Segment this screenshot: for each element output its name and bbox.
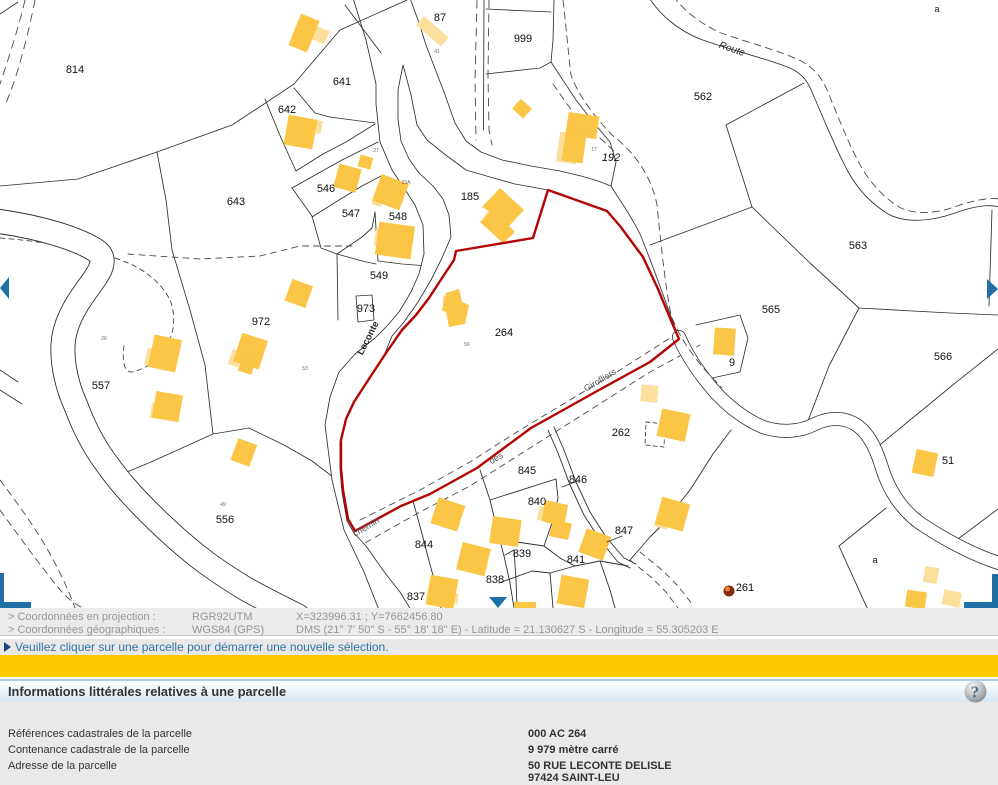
svg-text:844: 844 <box>415 539 433 551</box>
svg-text:a: a <box>934 4 939 14</box>
svg-text:des: des <box>487 450 505 466</box>
svg-text:Route: Route <box>717 40 746 59</box>
svg-text:549: 549 <box>370 270 388 282</box>
svg-text:563: 563 <box>849 240 867 252</box>
svg-text:53: 53 <box>302 366 308 372</box>
svg-text:837: 837 <box>407 591 425 603</box>
svg-text:845: 845 <box>518 465 536 477</box>
svg-text:56: 56 <box>464 342 470 348</box>
svg-text:838: 838 <box>486 574 504 586</box>
svg-text:546: 546 <box>317 183 335 195</box>
svg-text:839: 839 <box>513 548 531 560</box>
svg-text:9: 9 <box>729 357 735 369</box>
svg-text:642: 642 <box>278 104 296 116</box>
svg-text:264: 264 <box>495 327 513 339</box>
svg-text:814: 814 <box>66 64 84 76</box>
svg-text:192: 192 <box>602 152 620 164</box>
svg-text:973: 973 <box>357 303 375 315</box>
svg-text:261: 261 <box>736 582 754 594</box>
svg-text:87: 87 <box>434 12 446 24</box>
svg-text:?: ? <box>971 683 980 702</box>
svg-text:556: 556 <box>216 514 234 526</box>
svg-text:641: 641 <box>333 76 351 88</box>
svg-text:51: 51 <box>942 455 954 467</box>
svg-text:999: 999 <box>514 33 532 45</box>
svg-text:17: 17 <box>591 147 597 153</box>
svg-text:643: 643 <box>227 196 245 208</box>
svg-text:a: a <box>872 555 877 565</box>
svg-text:847: 847 <box>615 525 633 537</box>
svg-text:972: 972 <box>252 316 270 328</box>
svg-text:547: 547 <box>342 208 360 220</box>
svg-text:562: 562 <box>694 91 712 103</box>
svg-text:262: 262 <box>612 427 630 439</box>
svg-text:chemin: chemin <box>351 515 381 539</box>
svg-text:49: 49 <box>220 502 226 508</box>
svg-text:548: 548 <box>389 211 407 223</box>
svg-text:840: 840 <box>528 496 546 508</box>
svg-text:565: 565 <box>762 304 780 316</box>
svg-text:27: 27 <box>373 148 379 154</box>
svg-text:33A: 33A <box>402 180 412 186</box>
svg-text:41: 41 <box>434 49 440 55</box>
svg-text:26: 26 <box>101 336 107 342</box>
svg-text:841: 841 <box>567 554 585 566</box>
svg-text:566: 566 <box>934 351 952 363</box>
svg-text:185: 185 <box>461 191 479 203</box>
svg-text:846: 846 <box>569 474 587 486</box>
svg-text:557: 557 <box>92 380 110 392</box>
